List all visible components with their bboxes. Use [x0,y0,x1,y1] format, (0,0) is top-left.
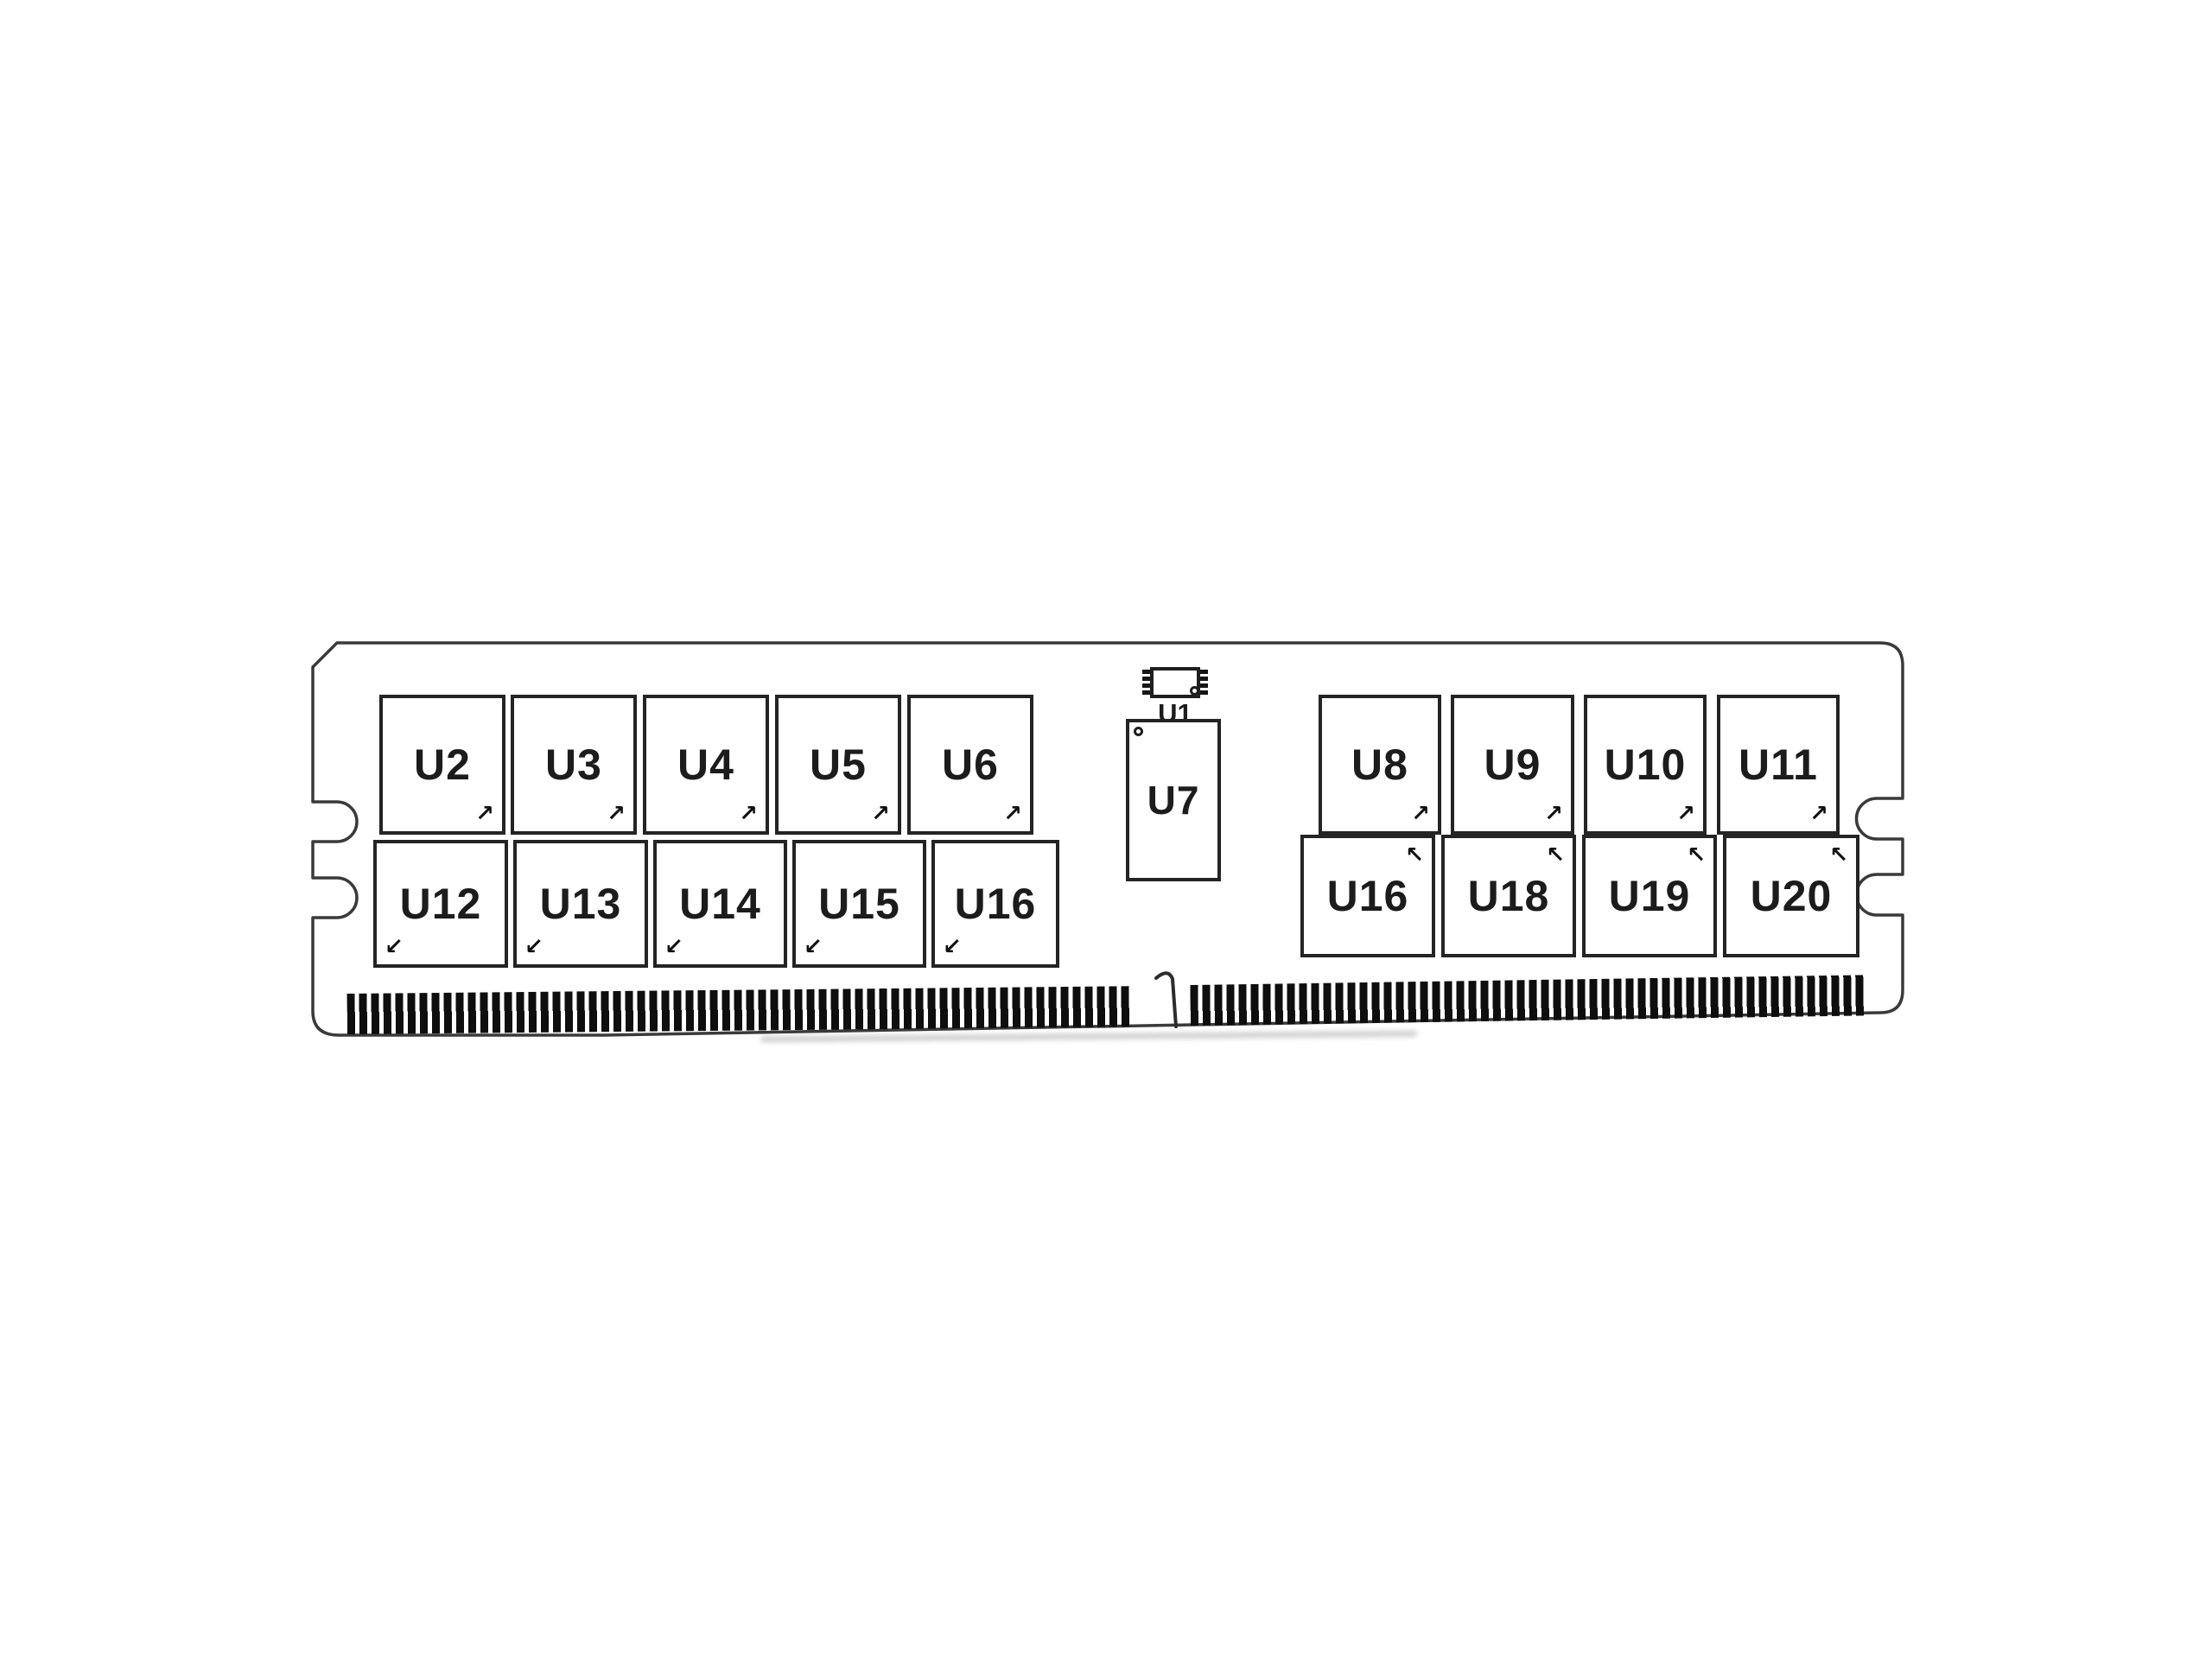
pin1-arrow-icon: ↖ [1405,844,1424,867]
chip-label: U7 [1147,780,1200,820]
chip-pin [1142,670,1150,674]
chip-label: U2 [414,743,471,786]
chip-label: U4 [677,743,734,786]
chip-u18: U18 ↖ [1441,835,1576,957]
pin1-arrow-icon: ↙ [664,936,683,958]
pin1-arrow-icon: ↖ [1546,844,1565,867]
pcb-outline [0,0,2212,1659]
chip-label: U16 [1327,874,1409,918]
chip-label: U8 [1351,743,1408,786]
chip-label: U12 [400,882,482,925]
chip-u19: U19 ↖ [1582,835,1717,957]
pin1-arrow-icon: ↙ [385,936,404,958]
pin1-arrow-icon: ↖ [1687,844,1706,867]
chip-u4: U4 ↗ [643,695,769,835]
chip-pin [1200,670,1208,674]
chip-u9: U9 ↗ [1451,695,1574,835]
pin1-dot [1134,727,1143,736]
memory-module-diagram: U2 ↗ U3 ↗ U4 ↗ U5 ↗ U6 ↗ U12 ↙ U13 ↙ U14… [0,0,2212,1659]
chip-u15: U15 ↙ [792,840,926,968]
chip-label: U6 [942,743,999,786]
pin1-dot [1190,686,1199,696]
chip-u12: U12 ↙ [373,840,508,968]
pin1-arrow-icon: ↗ [1411,803,1430,825]
chip-u5: U5 ↗ [775,695,901,835]
chip-label: U9 [1484,743,1541,786]
pin1-arrow-icon: ↙ [524,936,543,958]
spd-chip-u1 [1150,667,1200,698]
chip-label: U20 [1751,874,1833,918]
register-chip-u7: U7 [1126,719,1221,881]
pin1-arrow-icon: ↗ [871,803,890,825]
pin1-arrow-icon: ↗ [1003,803,1022,825]
pin1-arrow-icon: ↗ [607,803,626,825]
chip-u16-right: U16 ↖ [1300,835,1435,957]
pin1-arrow-icon: ↖ [1829,844,1848,867]
chip-u8: U8 ↗ [1319,695,1441,835]
chip-label: U16 [955,882,1037,925]
pin1-arrow-icon: ↙ [943,936,962,958]
chip-u6: U6 ↗ [907,695,1033,835]
pin1-arrow-icon: ↗ [1676,803,1695,825]
chip-u14: U14 ↙ [653,840,787,968]
chip-label: U10 [1605,743,1687,786]
chip-pin [1142,677,1150,681]
chip-u20: U20 ↖ [1723,835,1859,957]
chip-u13: U13 ↙ [513,840,648,968]
chip-pin [1142,690,1150,695]
pin1-arrow-icon: ↗ [1809,803,1828,825]
pin1-arrow-icon: ↙ [804,936,823,958]
chip-pin [1200,690,1208,695]
chip-label: U18 [1468,874,1550,918]
gold-finger-pins-left [347,986,1132,1034]
chip-u3: U3 ↗ [511,695,637,835]
chip-label: U11 [1738,743,1818,786]
pin1-arrow-icon: ↗ [739,803,758,825]
chip-u2: U2 ↗ [379,695,505,835]
chip-label: U19 [1609,874,1691,918]
pin1-arrow-icon: ↗ [475,803,494,825]
chip-pin [1142,683,1150,688]
chip-label: U13 [540,882,622,925]
chip-label: U3 [545,743,602,786]
chip-u16-left: U16 ↙ [931,840,1059,968]
chip-u11: U11 ↗ [1717,695,1840,835]
pin1-arrow-icon: ↗ [1544,803,1563,825]
chip-label: U5 [810,743,867,786]
chip-pin [1200,677,1208,681]
chip-pin [1200,683,1208,688]
chip-u10: U10 ↗ [1584,695,1707,835]
chip-label: U15 [818,882,900,925]
chip-label: U14 [679,882,761,925]
